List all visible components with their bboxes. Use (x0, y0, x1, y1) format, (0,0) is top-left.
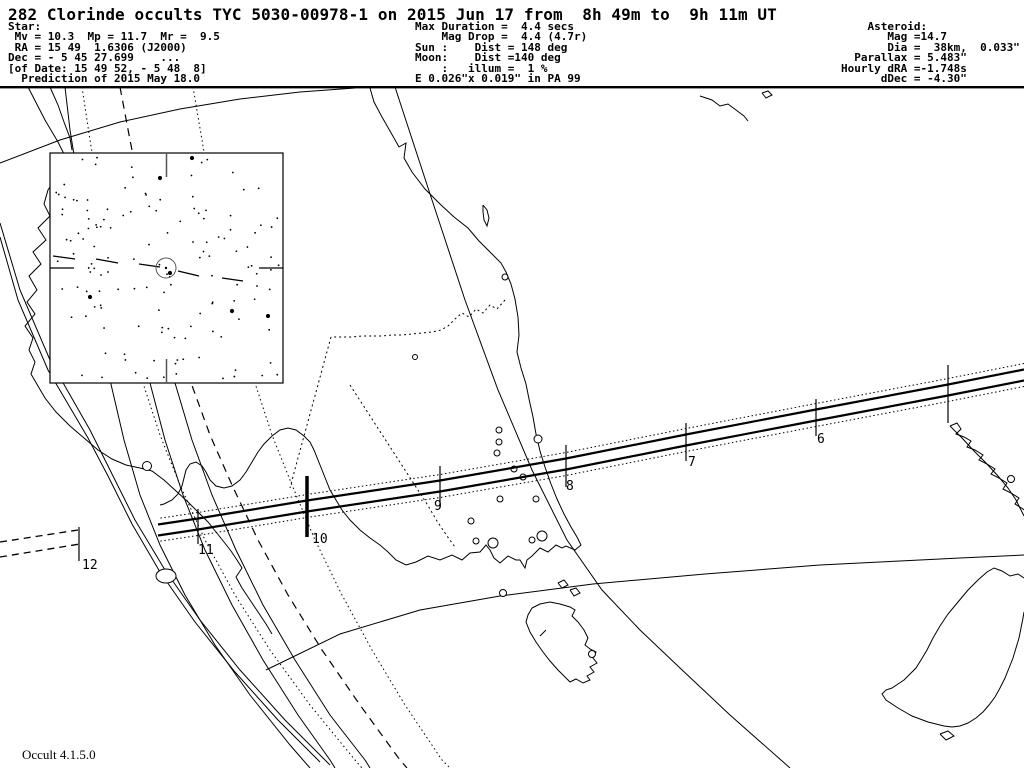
faint-star-dot (100, 226, 102, 228)
faint-star-dot (88, 228, 90, 230)
faint-star-dot (105, 352, 107, 354)
city-marker (1008, 476, 1015, 483)
faint-star-dot (99, 290, 101, 292)
city-marker (494, 450, 500, 456)
faint-star-dot (57, 260, 59, 262)
ne-coast-segment (700, 96, 748, 121)
occult-app-window: 282 Clorinde occults TYC 5030-00978-1 on… (0, 0, 1024, 768)
limit-line-2 (150, 383, 335, 768)
faint-star-dot (230, 229, 232, 231)
time-tick-label: 7 (688, 455, 696, 470)
path-horizon-north (0, 530, 78, 542)
city-marker (500, 590, 507, 597)
faint-star-dot (193, 208, 195, 210)
faint-star-dot (270, 362, 272, 364)
faint-star-dot (70, 240, 72, 242)
faint-star-dot (138, 325, 140, 327)
faint-star-dot (117, 288, 119, 290)
faint-star-dot (148, 205, 150, 207)
faint-star-dot (88, 267, 90, 269)
faint-star-dot (131, 166, 133, 168)
faint-star-dot (175, 373, 177, 375)
path-horizon-south (0, 544, 80, 557)
faint-star-dot (167, 328, 169, 330)
nz-north-east (950, 423, 1024, 510)
faint-star-dot (89, 271, 91, 273)
faint-star-dot (184, 338, 186, 340)
faint-star-dot (100, 304, 102, 306)
faint-star-dot (203, 251, 205, 253)
faint-star-dot (124, 359, 126, 361)
time-tick-label: 10 (312, 532, 328, 547)
occultation-path-map: 6789101112 (0, 0, 1024, 768)
faint-star-dot (230, 215, 232, 217)
faint-star-dot (95, 224, 97, 226)
faint-star-dot (96, 157, 98, 159)
city-marker (488, 538, 498, 548)
faint-star-dot (85, 315, 87, 317)
faint-star-dot (62, 208, 64, 210)
faint-star-dot (179, 221, 181, 223)
faint-star-dot (103, 327, 105, 329)
faint-star-dot (222, 378, 224, 380)
faint-star-dot (199, 313, 201, 315)
faint-star-dot (256, 285, 258, 287)
border-qld-nsw (331, 300, 505, 337)
faint-star-dot (238, 318, 240, 320)
city-marker (529, 537, 535, 543)
faint-star-dot (223, 238, 225, 240)
time-tick-label: 8 (566, 479, 574, 494)
faint-star-dot (81, 374, 83, 376)
faint-star-dot (132, 176, 134, 178)
faint-star-dot (270, 256, 272, 258)
faint-star-dot (95, 163, 97, 165)
path-limit-south (158, 381, 1024, 536)
faint-star-dot (256, 273, 258, 275)
faint-star-dot (190, 325, 192, 327)
faint-star-dot (161, 331, 163, 333)
faint-star-dot (206, 241, 208, 243)
tasmania (526, 602, 597, 683)
faint-star-dot (247, 266, 249, 268)
faint-star-dot (96, 226, 98, 228)
faint-star-dot (212, 301, 214, 303)
lat-arc-bottom (266, 555, 1024, 670)
city-marker (537, 531, 547, 541)
faint-star-dot (212, 331, 214, 333)
city-marker-large (156, 569, 176, 583)
city-marker (534, 435, 542, 443)
faint-star-dot (78, 232, 80, 234)
faint-star-dot (93, 267, 95, 269)
faint-star-dot (86, 210, 88, 212)
faint-star-dot (122, 215, 124, 217)
faint-star-dot (260, 224, 262, 226)
ne-islet (762, 91, 772, 98)
faint-star-dot (268, 329, 270, 331)
faint-star-dot (107, 257, 109, 259)
bright-star-dot (266, 314, 270, 318)
faint-star-dot (233, 376, 235, 378)
faint-star-dot (278, 264, 280, 266)
bright-star-dot (158, 176, 162, 180)
target-star-dot (165, 267, 167, 269)
path-error-limit-north (158, 364, 1024, 519)
faint-star-dot (232, 172, 234, 174)
faint-star-dot (158, 309, 160, 311)
bright-star-dot (190, 156, 194, 160)
city-marker (496, 439, 502, 445)
faint-star-dot (88, 218, 90, 220)
faint-star-dot (208, 255, 210, 257)
faint-star-dot (133, 258, 135, 260)
faint-star-dot (63, 184, 65, 186)
faint-star-dot (107, 208, 109, 210)
city-marker (468, 518, 474, 524)
faint-star-dot (174, 337, 176, 339)
faint-star-dot (107, 271, 109, 273)
city-marker (589, 651, 596, 658)
faint-star-dot (271, 226, 273, 228)
faint-star-dot (55, 192, 57, 194)
bright-star-dot (230, 309, 234, 313)
faint-star-dot (233, 300, 235, 302)
faint-star-dot (205, 210, 207, 212)
faint-star-dot (159, 264, 161, 266)
time-tick-label: 11 (198, 543, 214, 558)
faint-star-dot (82, 159, 84, 161)
faint-star-dot (235, 250, 237, 252)
faint-star-dot (192, 196, 194, 198)
faint-star-dot (211, 275, 213, 277)
time-tick-label: 12 (82, 558, 98, 573)
faint-star-dot (254, 298, 256, 300)
stewart-island (940, 731, 954, 740)
faint-star-dot (82, 238, 84, 240)
faint-star-dot (100, 307, 102, 309)
faint-star-dot (170, 284, 172, 286)
faint-star-dot (175, 363, 177, 365)
faint-star-dot (199, 257, 201, 259)
city-marker (413, 355, 418, 360)
faint-star-dot (124, 353, 126, 355)
faint-star-dot (61, 214, 63, 216)
faint-star-dot (146, 377, 148, 379)
city-marker (502, 274, 508, 280)
faint-star-dot (100, 274, 102, 276)
faint-star-dot (64, 196, 66, 198)
faint-star-dot (261, 375, 263, 377)
faint-star-dot (159, 199, 161, 201)
faint-star-dot (73, 253, 75, 255)
city-marker (533, 496, 539, 502)
faint-star-dot (206, 159, 208, 161)
faint-star-dot (203, 218, 205, 220)
faint-star-dot (101, 376, 103, 378)
faint-star-dot (220, 336, 222, 338)
map-frame-top (0, 86, 1024, 88)
faint-star-dot (153, 360, 155, 362)
faint-star-dot (61, 288, 63, 290)
faint-star-dot (76, 200, 78, 202)
tasmania-mark (540, 630, 546, 636)
nz-north-west (950, 426, 1024, 516)
app-version-label: Occult 4.1.5.0 (22, 747, 96, 763)
faint-star-dot (161, 327, 163, 329)
city-marker (143, 462, 152, 471)
faint-star-dot (86, 291, 88, 293)
faint-star-dot (270, 269, 272, 271)
faint-star-dot (58, 194, 60, 196)
nz-south-island (882, 568, 1024, 727)
faint-star-dot (71, 316, 73, 318)
faint-star-dot (236, 284, 238, 286)
qld-islet (483, 205, 489, 226)
faint-star-dot (66, 239, 68, 241)
faint-star-dot (155, 210, 157, 212)
faint-star-dot (146, 287, 148, 289)
faint-star-dot (77, 286, 79, 288)
faint-star-dot (87, 199, 89, 201)
faint-star-dot (103, 219, 105, 221)
faint-star-dot (276, 217, 278, 219)
faint-star-dot (94, 306, 96, 308)
faint-star-dot (218, 236, 220, 238)
faint-star-dot (201, 162, 203, 164)
faint-star-dot (235, 369, 237, 371)
city-marker (497, 496, 503, 502)
faint-star-dot (91, 263, 93, 265)
faint-star-dot (254, 232, 256, 234)
faint-star-dot (145, 194, 147, 196)
lat-arc-top (0, 88, 355, 163)
faint-star-dot (163, 376, 165, 378)
faint-star-dot (134, 288, 136, 290)
faint-star-dot (247, 246, 249, 248)
faint-star-dot (182, 358, 184, 360)
bright-star-dot (88, 295, 92, 299)
faint-star-dot (124, 187, 126, 189)
time-tick-label: 9 (434, 499, 442, 514)
faint-star-dot (135, 372, 137, 374)
faint-star-dot (73, 199, 75, 201)
faint-star-dot (166, 273, 168, 275)
limit-line-3 (175, 383, 370, 768)
faint-star-dot (176, 359, 178, 361)
faint-star-dot (192, 241, 194, 243)
faint-star-dot (93, 246, 95, 248)
faint-star-dot (198, 212, 200, 214)
bass-islet-1 (558, 580, 568, 588)
faint-star-dot (148, 244, 150, 246)
faint-star-dot (258, 187, 260, 189)
city-marker (473, 538, 479, 544)
city-marker (496, 427, 502, 433)
faint-star-dot (163, 292, 165, 294)
border-murray (350, 385, 455, 547)
time-tick-label: 6 (817, 432, 825, 447)
faint-star-dot (251, 265, 253, 267)
border-sw-leg (290, 337, 331, 488)
faint-star-dot (191, 175, 193, 177)
bright-star-dot (168, 271, 172, 275)
faint-star-dot (243, 189, 245, 191)
faint-star-dot (110, 227, 112, 229)
faint-star-dot (130, 211, 132, 213)
faint-star-dot (198, 357, 200, 359)
faint-star-dot (167, 232, 169, 234)
faint-star-dot (269, 289, 271, 291)
bass-islet-2 (570, 588, 580, 596)
faint-star-dot (276, 374, 278, 376)
